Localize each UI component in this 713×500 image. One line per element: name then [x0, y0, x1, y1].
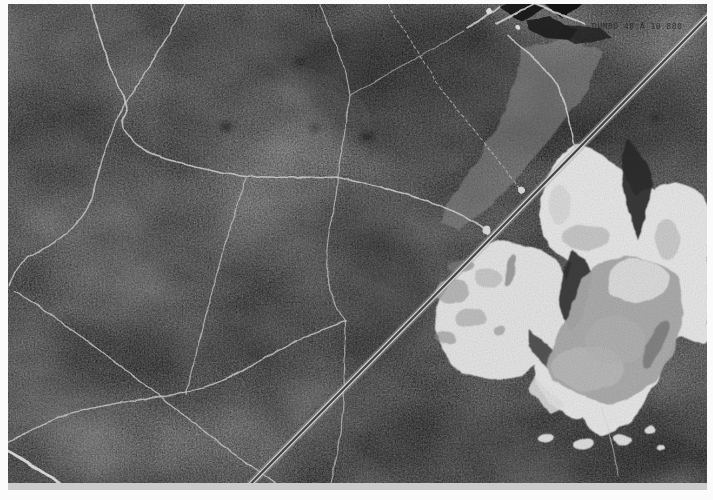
film-grain	[8, 4, 707, 490]
aerial-photo: DUMBO 48 A 10 880	[0, 0, 713, 500]
aerial-photo-page: DUMBO 48 A 10 880	[0, 0, 713, 500]
photo-id-stamp: DUMBO 48 A 10 880	[592, 22, 682, 31]
photo-bottom-edge	[8, 483, 707, 490]
